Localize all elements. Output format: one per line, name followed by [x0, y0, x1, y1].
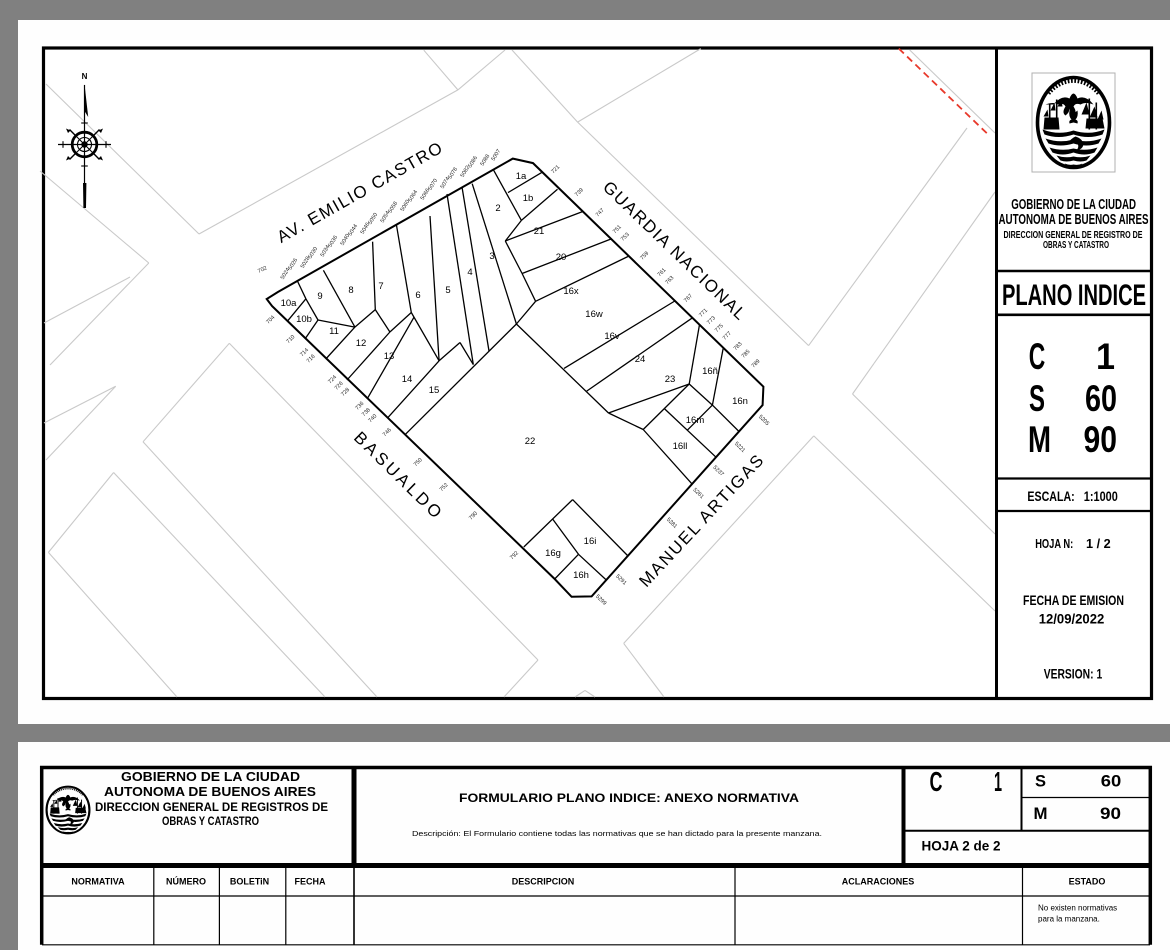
svg-text:1:1000: 1:1000 [1084, 488, 1118, 504]
svg-text:AUTONOMA DE BUENOS AIRES: AUTONOMA DE BUENOS AIRES [999, 212, 1149, 228]
svg-text:Descripción: El Formulario con: Descripción: El Formulario contiene toda… [412, 829, 822, 838]
svg-text:NÚMERO: NÚMERO [166, 876, 206, 887]
svg-text:N: N [82, 72, 88, 81]
svg-text:1 / 2: 1 / 2 [1086, 536, 1111, 551]
svg-text:60: 60 [1085, 378, 1117, 419]
svg-text:HOJA 2 de 2: HOJA 2 de 2 [922, 839, 1001, 854]
svg-text:16n: 16n [732, 396, 748, 407]
svg-text:1: 1 [994, 766, 1002, 797]
svg-text:12: 12 [356, 338, 367, 349]
svg-text:1b: 1b [523, 193, 534, 204]
svg-text:16ll: 16ll [673, 441, 688, 452]
svg-text:C: C [930, 766, 943, 797]
svg-text:16ñ: 16ñ [702, 366, 718, 377]
svg-text:21: 21 [534, 226, 545, 237]
svg-text:11: 11 [329, 326, 339, 337]
svg-text:BOLETiN: BOLETiN [230, 877, 269, 887]
svg-text:DESCRIPCION: DESCRIPCION [512, 877, 575, 887]
svg-text:12/09/2022: 12/09/2022 [1039, 612, 1105, 627]
svg-text:7: 7 [378, 281, 383, 292]
svg-text:16m: 16m [686, 415, 705, 426]
svg-text:8: 8 [348, 285, 353, 296]
svg-text:23: 23 [665, 374, 676, 385]
svg-text:S: S [1035, 772, 1046, 791]
svg-text:OBRAS Y CATASTRO: OBRAS Y CATASTRO [162, 816, 259, 828]
svg-text:ESCALA:: ESCALA: [1027, 488, 1074, 504]
svg-text:GOBIERNO DE LA CIUDAD: GOBIERNO DE LA CIUDAD [1011, 197, 1136, 213]
svg-text:16v: 16v [604, 331, 620, 342]
svg-text:3: 3 [489, 251, 494, 262]
svg-text:90: 90 [1100, 804, 1121, 823]
svg-text:FORMULARIO PLANO INDICE: ANEXO: FORMULARIO PLANO INDICE: ANEXO NORMATIVA [459, 791, 799, 805]
svg-text:16w: 16w [585, 309, 603, 320]
svg-text:22: 22 [525, 436, 536, 447]
svg-text:16x: 16x [563, 286, 579, 297]
svg-text:OBRAS Y CATASTRO: OBRAS Y CATASTRO [1043, 239, 1109, 251]
svg-text:ESTADO: ESTADO [1069, 877, 1106, 887]
svg-text:16h: 16h [573, 570, 589, 581]
svg-text:5: 5 [445, 285, 450, 296]
svg-text:No existen normativas: No existen normativas [1038, 904, 1117, 913]
svg-text:VERSION: 1: VERSION: 1 [1044, 667, 1103, 682]
svg-text:para la manzana.: para la manzana. [1038, 915, 1100, 924]
svg-text:ACLARACIONES: ACLARACIONES [842, 877, 915, 887]
svg-text:14: 14 [402, 374, 413, 385]
svg-text:4: 4 [467, 267, 472, 278]
svg-text:AUTONOMA DE BUENOS AIRES: AUTONOMA DE BUENOS AIRES [104, 784, 316, 799]
svg-text:GOBIERNO DE LA CIUDAD: GOBIERNO DE LA CIUDAD [121, 769, 300, 784]
svg-text:S: S [1029, 378, 1045, 419]
svg-text:C: C [1029, 336, 1046, 377]
svg-text:16g: 16g [545, 548, 561, 559]
svg-text:M: M [1028, 419, 1051, 460]
svg-text:M: M [1034, 804, 1048, 823]
svg-text:2: 2 [495, 203, 500, 214]
svg-text:15: 15 [429, 385, 440, 396]
svg-text:HOJA N:: HOJA N: [1035, 536, 1073, 551]
svg-text:DIRECCION GENERAL DE REGISTROS: DIRECCION GENERAL DE REGISTROS DE [95, 802, 328, 814]
svg-text:1a: 1a [516, 171, 527, 182]
svg-text:6: 6 [415, 290, 420, 301]
svg-text:FECHA DE EMISION: FECHA DE EMISION [1023, 593, 1124, 608]
svg-text:10a: 10a [281, 298, 298, 309]
svg-text:NORMATIVA: NORMATIVA [71, 877, 125, 887]
svg-text:24: 24 [635, 354, 646, 365]
svg-text:9: 9 [317, 291, 322, 302]
svg-text:16i: 16i [584, 536, 597, 547]
svg-text:1: 1 [1096, 336, 1115, 377]
svg-text:13: 13 [384, 351, 395, 362]
svg-text:90: 90 [1084, 419, 1118, 460]
svg-text:60: 60 [1101, 772, 1122, 791]
svg-text:PLANO INDICE: PLANO INDICE [1002, 279, 1146, 312]
svg-text:10b: 10b [296, 314, 312, 325]
svg-text:FECHA: FECHA [295, 877, 326, 887]
svg-text:20: 20 [556, 252, 567, 263]
